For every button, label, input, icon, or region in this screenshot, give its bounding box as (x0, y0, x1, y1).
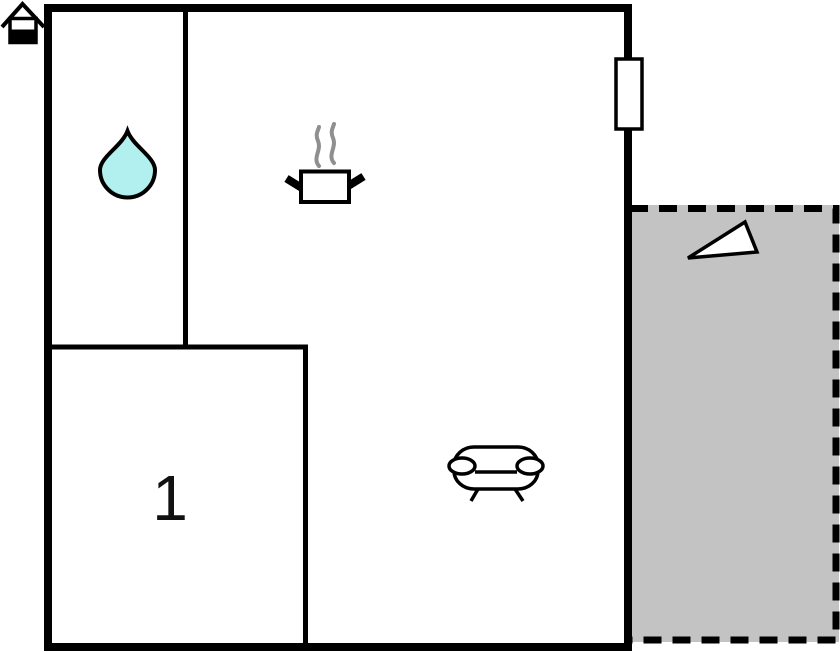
pot-body (301, 172, 349, 203)
house-body-fill (9, 30, 37, 44)
building-outer-wall (48, 8, 628, 647)
room-label: 1 (152, 462, 188, 534)
floor-plan-drawing: 1 (0, 0, 840, 652)
floor-plan: 1 (0, 0, 840, 652)
sofa-armrest-left (449, 458, 475, 474)
terrace (630, 205, 839, 642)
sofa-armrest-right (517, 458, 543, 474)
house-icon (2, 4, 44, 43)
terrace-fill (630, 205, 839, 642)
window-icon (616, 59, 642, 129)
